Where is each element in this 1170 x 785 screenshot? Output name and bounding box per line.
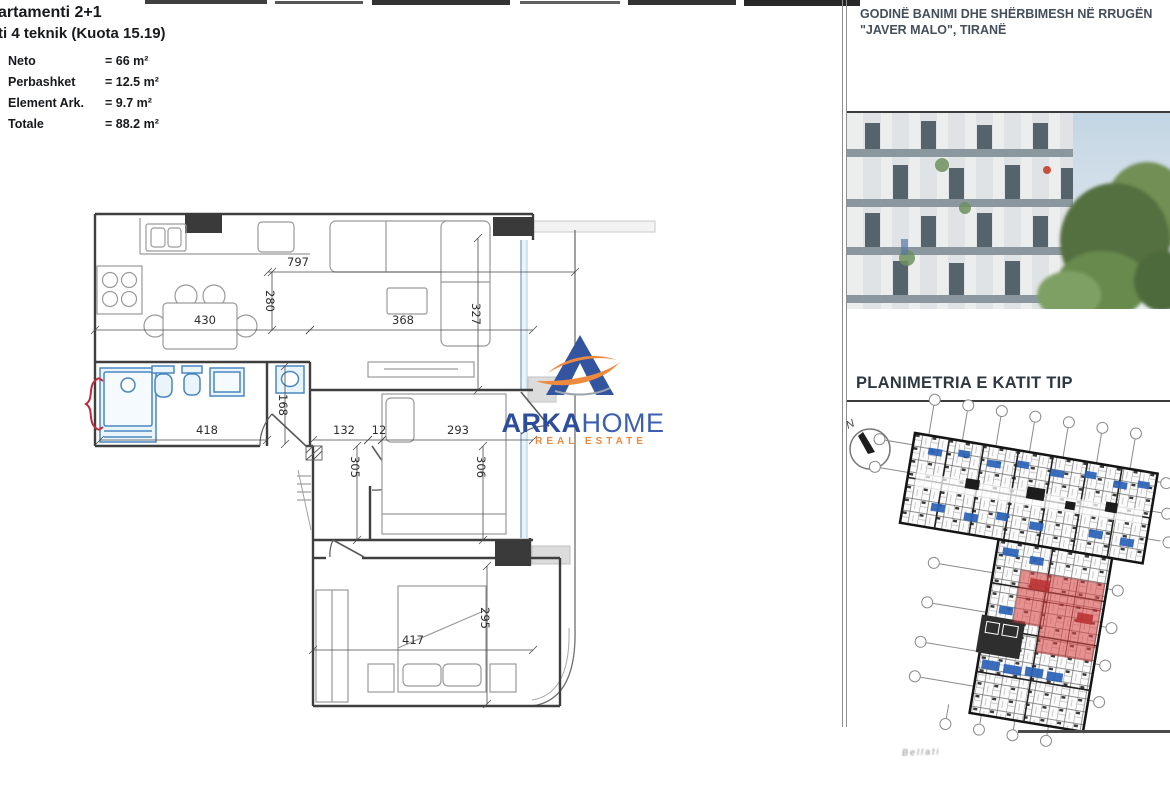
area-label: Perbashket bbox=[8, 72, 105, 93]
hatch-stub bbox=[297, 446, 322, 530]
red-accent bbox=[1043, 166, 1051, 174]
sofa-chaise bbox=[441, 221, 490, 346]
toilet bbox=[152, 366, 174, 397]
project-header-line2: "JAVER MALO", TIRANË bbox=[860, 22, 1166, 38]
project-header: GODINË BANIMI DHE SHËRBIMESH NË RRUGËN "… bbox=[860, 6, 1166, 38]
svg-text:305: 305 bbox=[348, 456, 362, 478]
typical-floor-plan: N bbox=[846, 392, 1170, 768]
svg-text:327: 327 bbox=[469, 303, 483, 325]
area-value: = 9.7 m² bbox=[105, 93, 152, 114]
logo-wordmark: ARKAHOME bbox=[498, 408, 668, 439]
svg-text:797: 797 bbox=[287, 255, 309, 269]
area-row: Totale= 88.2 m² bbox=[8, 114, 330, 135]
svg-text:12: 12 bbox=[372, 423, 387, 437]
coffee-table bbox=[387, 288, 427, 314]
area-value: = 88.2 m² bbox=[105, 114, 159, 135]
svg-text:417: 417 bbox=[402, 633, 424, 647]
apartment-subtitle: ti 4 teknik (Kuota 15.19) bbox=[0, 25, 330, 42]
arkahome-logo-mark bbox=[520, 333, 640, 408]
pillow bbox=[443, 664, 481, 686]
svg-text:368: 368 bbox=[392, 313, 414, 327]
balcony-slabs bbox=[528, 221, 655, 706]
area-label: Neto bbox=[8, 51, 105, 72]
logo-tagline: REAL ESTATE bbox=[526, 436, 656, 447]
pillow bbox=[386, 398, 414, 442]
apartment-info: artamenti 2+1 ti 4 teknik (Kuota 15.19) … bbox=[0, 4, 330, 135]
svg-text:430: 430 bbox=[194, 313, 216, 327]
logo-text-home: HOME bbox=[582, 408, 665, 438]
bidet bbox=[182, 366, 202, 395]
nightstand bbox=[490, 664, 516, 692]
area-label: Element Ark. bbox=[8, 93, 105, 114]
building-facade bbox=[847, 113, 1073, 309]
area-rows: Neto= 66 m²Perbashket= 12.5 m²Element Ar… bbox=[8, 51, 330, 135]
stove-icon bbox=[97, 266, 142, 314]
dimension: 132 bbox=[309, 423, 372, 444]
area-value: = 12.5 m² bbox=[105, 72, 159, 93]
area-label: Totale bbox=[8, 114, 105, 135]
living-room bbox=[330, 221, 490, 377]
svg-text:168: 168 bbox=[276, 394, 290, 416]
logo-text-arka: ARKA bbox=[502, 408, 582, 438]
dimension: 280 bbox=[263, 268, 277, 334]
svg-text:293: 293 bbox=[447, 423, 469, 437]
svg-text:132: 132 bbox=[333, 423, 355, 437]
area-row: Element Ark.= 9.7 m² bbox=[8, 93, 330, 114]
nightstand bbox=[368, 664, 394, 692]
compass-n-label: N bbox=[846, 417, 857, 431]
project-header-line1: GODINË BANIMI DHE SHËRBIMESH NË RRUGËN bbox=[860, 6, 1166, 22]
svg-text:295: 295 bbox=[478, 607, 492, 629]
fridge bbox=[258, 222, 294, 252]
area-value: = 66 m² bbox=[105, 51, 148, 72]
section-title: PLANIMETRIA E KATIT TIP bbox=[856, 374, 1166, 393]
wc-sink bbox=[276, 366, 304, 393]
building-outline bbox=[846, 392, 1170, 762]
building-render-photo bbox=[847, 113, 1170, 309]
shower bbox=[100, 368, 156, 442]
sheet: artamenti 2+1 ti 4 teknik (Kuota 15.19) … bbox=[0, 0, 1170, 785]
area-row: Perbashket= 12.5 m² bbox=[8, 72, 330, 93]
area-row: Neto= 66 m² bbox=[8, 51, 330, 72]
apartment-title: artamenti 2+1 bbox=[0, 4, 330, 22]
arkahome-logo: ARKAHOME REAL ESTATE bbox=[498, 330, 678, 460]
svg-text:306: 306 bbox=[474, 456, 488, 478]
washing-machine bbox=[210, 368, 244, 396]
signature-note: Bellati bbox=[902, 746, 941, 757]
svg-text:418: 418 bbox=[196, 423, 218, 437]
titleblock-rule bbox=[1018, 730, 1170, 733]
panel-separator-line bbox=[842, 0, 843, 727]
dimension: 305 bbox=[348, 442, 362, 544]
pillow bbox=[403, 664, 441, 686]
svg-text:280: 280 bbox=[263, 290, 277, 312]
